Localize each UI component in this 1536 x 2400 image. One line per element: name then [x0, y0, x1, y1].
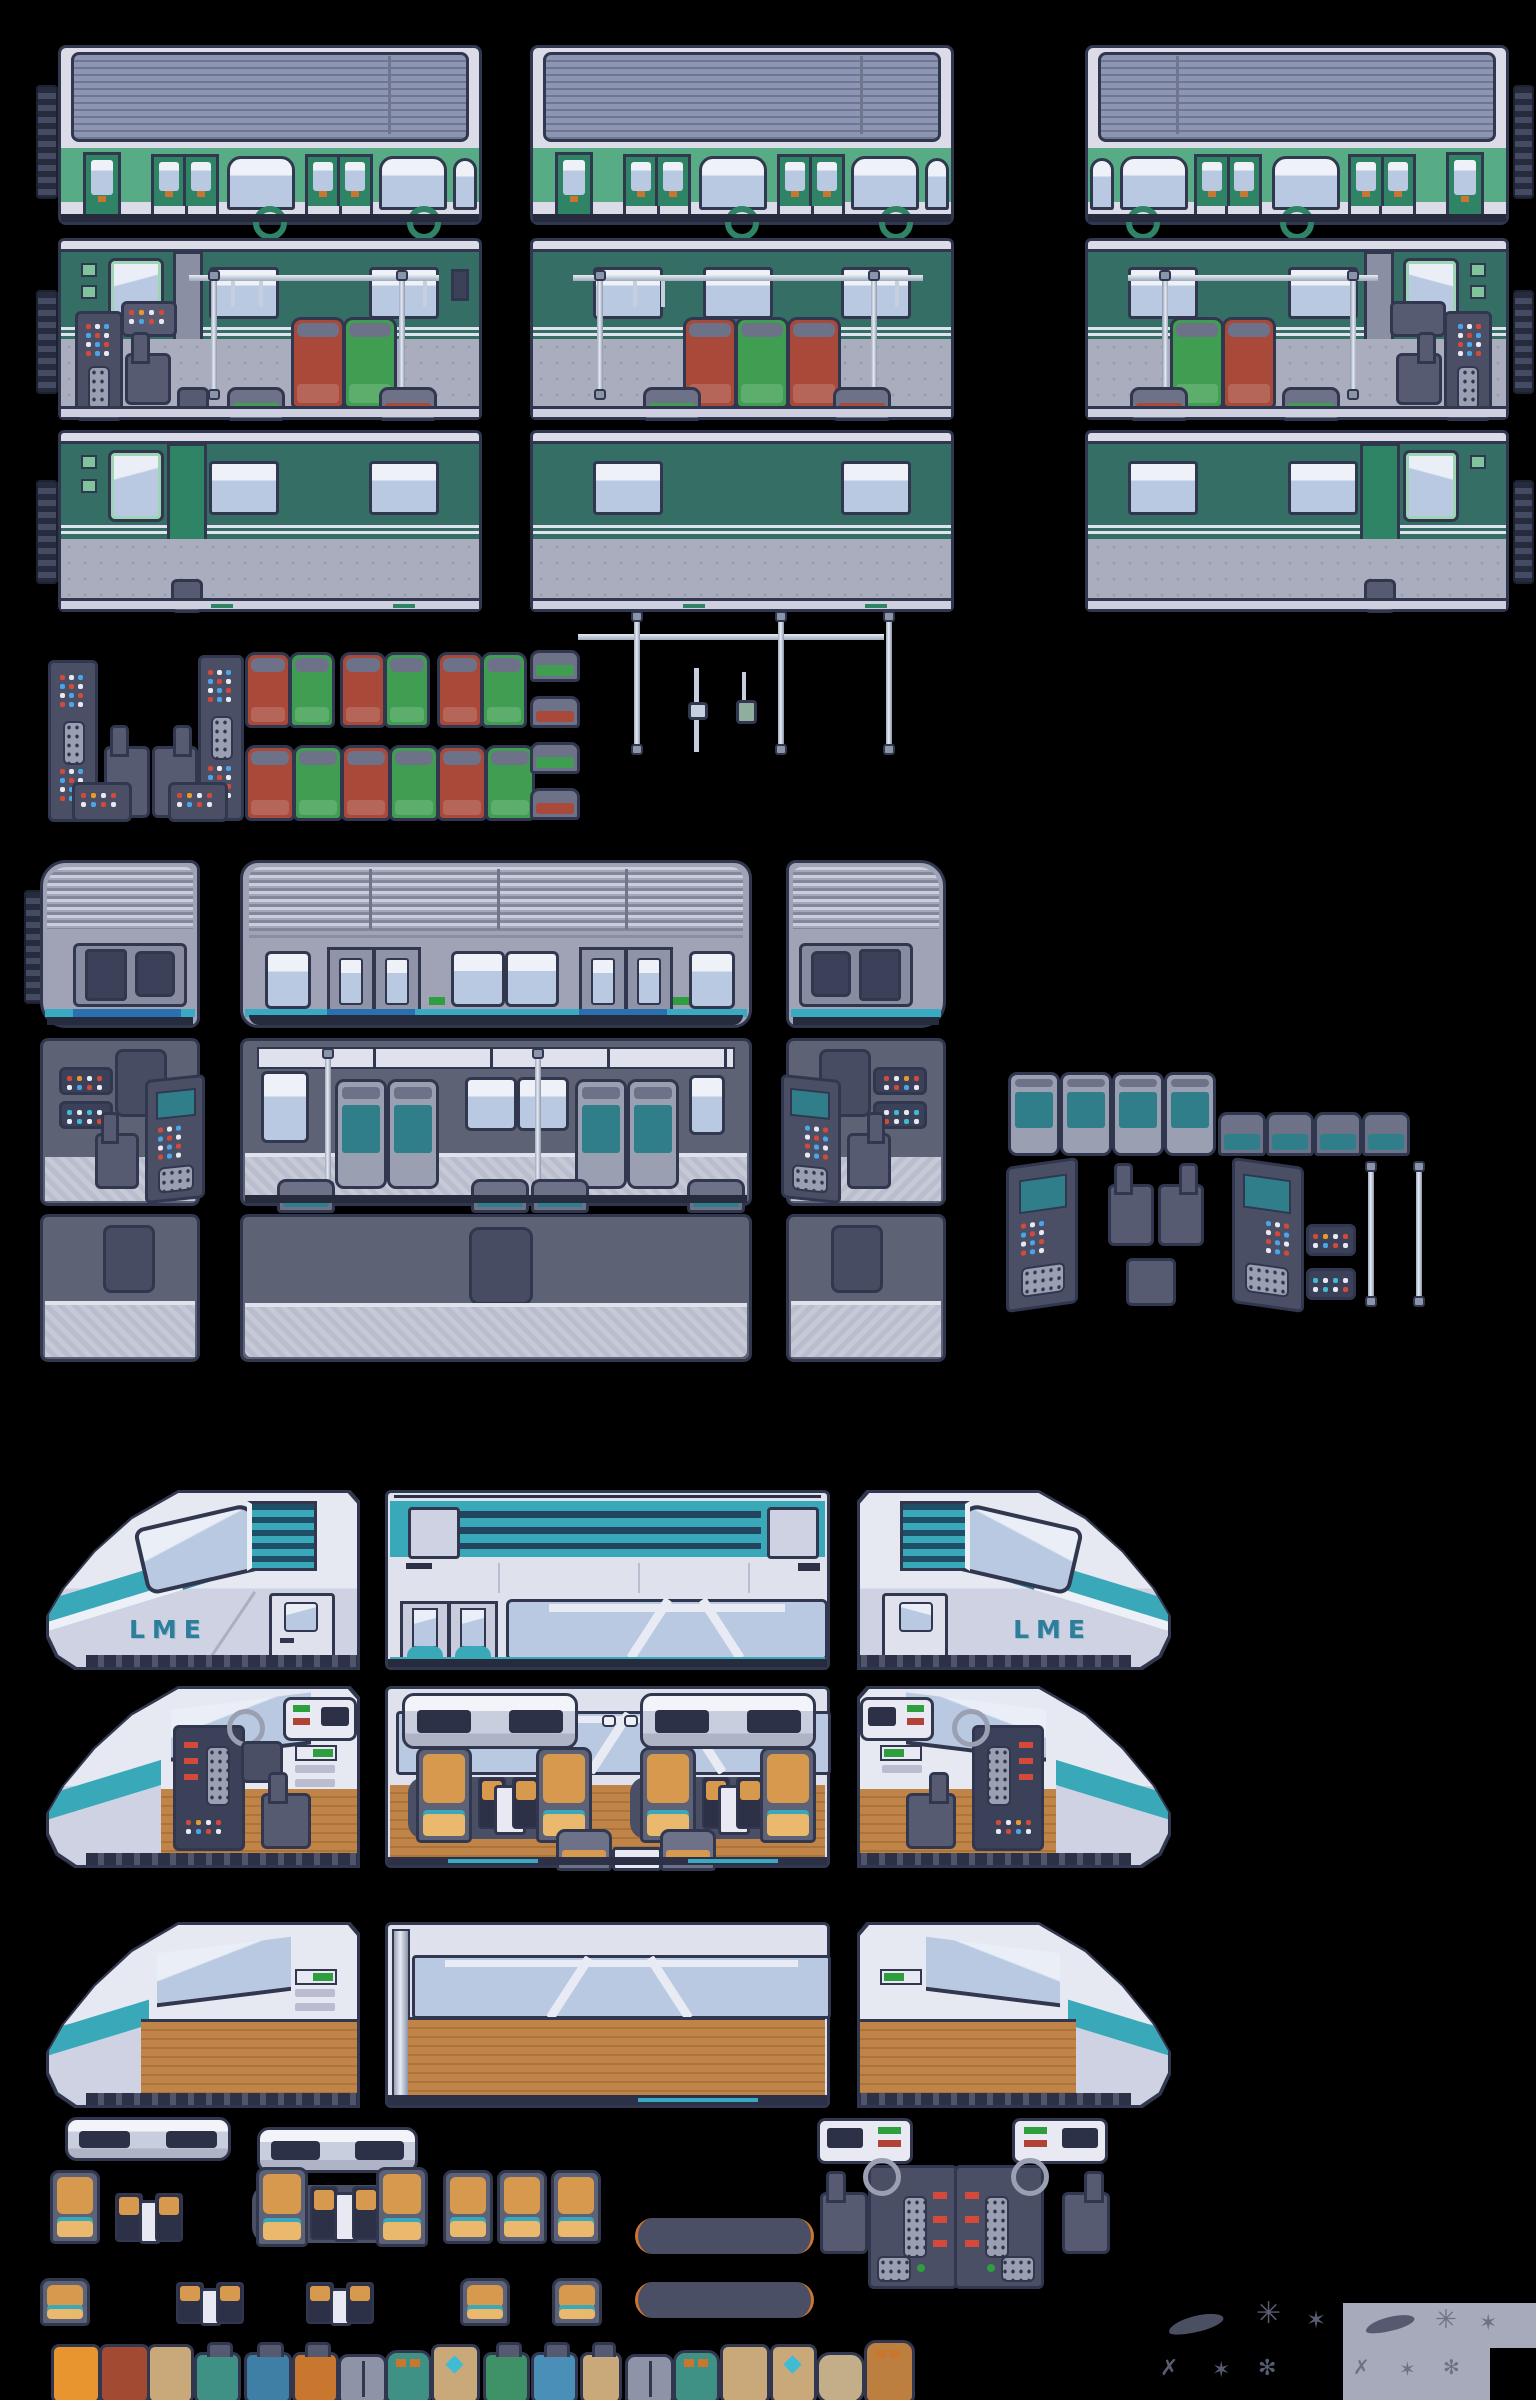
driver-chair	[820, 2192, 868, 2254]
hull-body: LME	[860, 1493, 1168, 1667]
ring-emblem	[879, 206, 913, 240]
hull-outline: LME	[46, 1490, 360, 1670]
panel-slot	[211, 716, 233, 760]
scratch-splat	[1364, 2311, 1416, 2337]
suitcase-tan	[147, 2344, 194, 2400]
door-right-leaf	[655, 154, 691, 212]
vertical-pole	[597, 275, 603, 395]
window	[593, 461, 663, 515]
ring-emblem	[725, 206, 759, 240]
car-wall	[1085, 430, 1509, 612]
panel-slot	[88, 366, 110, 410]
label-dash	[406, 1563, 432, 1569]
baseboard-cyan	[688, 1859, 778, 1863]
window-small-arched	[925, 158, 949, 210]
driver-chair	[261, 1793, 311, 1849]
skirt	[86, 2093, 357, 2105]
panel-notch	[1490, 2348, 1536, 2400]
roof-seam	[1176, 56, 1179, 134]
info-sticker	[295, 1779, 335, 1787]
green-car-exterior-2	[530, 45, 954, 225]
brand-label: LME	[1013, 1615, 1092, 1644]
bag-gray-double	[625, 2354, 674, 2400]
car-wall	[240, 1214, 752, 1362]
seat-gray-teal	[387, 1079, 439, 1189]
wall-stripes	[533, 525, 951, 537]
control-console	[72, 782, 132, 822]
end-window	[261, 1071, 309, 1143]
info-sticker	[295, 1989, 335, 1997]
ring-emblem	[1280, 206, 1314, 240]
label-dash	[798, 1563, 820, 1571]
buttons-red	[67, 1076, 72, 1081]
cab-panel-tower	[75, 311, 123, 421]
booth-stool	[155, 2193, 183, 2242]
door-window	[284, 1602, 318, 1632]
cockpit-console-right	[1232, 1157, 1304, 1313]
seat-orange	[416, 1747, 472, 1843]
window-small-arched	[1090, 158, 1114, 210]
door-window	[460, 1608, 486, 1648]
lme-head-wall-left	[46, 1922, 360, 2108]
backpack-brown	[864, 2340, 915, 2400]
end-window	[111, 453, 161, 519]
car-interior	[58, 238, 482, 420]
vertical-pole	[1350, 275, 1356, 395]
seat-gray-teal	[575, 1079, 627, 1189]
band-vents	[454, 1511, 761, 1549]
seat-red	[1222, 317, 1276, 409]
window	[209, 461, 279, 515]
window-arched	[1272, 156, 1340, 210]
buttons-red	[914, 1076, 919, 1081]
car-interior	[240, 1038, 752, 1206]
baseboard-marker	[211, 604, 233, 608]
button-grid	[208, 766, 213, 771]
car-body	[240, 860, 752, 1028]
roof	[793, 867, 939, 929]
wall-vent	[81, 455, 97, 469]
console-buttons	[186, 1820, 191, 1825]
baseboard-marker	[683, 604, 705, 608]
underframe	[249, 1015, 743, 1025]
door-right-leaf	[809, 154, 845, 212]
crack-mark: ✶	[1399, 2357, 1416, 2381]
crack-mark: ✻	[1258, 2356, 1276, 2381]
hull-outline: LME	[857, 1490, 1171, 1670]
skirt	[86, 1655, 357, 1667]
roof	[47, 867, 193, 929]
hull-body	[49, 1925, 357, 2105]
seat-green	[481, 652, 527, 728]
green-car-exterior-3	[1085, 45, 1509, 225]
window	[465, 1077, 517, 1131]
car-interior	[1085, 238, 1509, 420]
cab-interior	[786, 1038, 946, 1206]
cockpit-console	[972, 1725, 1044, 1851]
cab-door	[859, 949, 901, 1001]
wood-wall	[860, 2019, 1076, 2096]
seat-red	[245, 652, 291, 728]
car-body	[1085, 45, 1509, 225]
hand-strap	[895, 281, 899, 307]
console-keypad	[1021, 1262, 1065, 1298]
panel-seam	[748, 1563, 750, 1593]
cab-door	[85, 949, 127, 1001]
body-seam	[249, 935, 743, 938]
lme-mid-exterior	[385, 1490, 830, 1670]
car-wall	[58, 430, 482, 612]
underframe	[533, 214, 951, 222]
window-arched	[851, 156, 919, 210]
band-panel	[767, 1507, 819, 1559]
crack-mark: ✳	[1435, 2305, 1457, 2335]
window-arched	[227, 156, 295, 210]
cyan-stripe	[791, 1009, 941, 1017]
roof	[543, 52, 941, 142]
button-panel	[1306, 1224, 1356, 1256]
wall-vent	[81, 263, 97, 277]
brand-label: LME	[129, 1615, 208, 1644]
vertical-pole	[886, 616, 892, 750]
cockpit-console-right	[954, 2165, 1044, 2289]
window	[369, 461, 439, 515]
hull-outline	[46, 1922, 360, 2108]
metro-cab-interior-left	[40, 1038, 200, 1206]
vertical-pole	[1416, 1166, 1422, 1302]
crack-mark: ✶	[1306, 2306, 1326, 2334]
metro-car-exterior	[240, 860, 752, 1028]
hand-strap	[633, 281, 637, 307]
luggage-rack	[640, 1693, 816, 1749]
interior-door	[103, 1225, 155, 1293]
roller-bag-green	[483, 2352, 530, 2400]
driver-chair	[95, 1133, 139, 1189]
control-console	[168, 782, 228, 822]
console-keypad	[792, 1164, 828, 1194]
baseboard	[1088, 406, 1506, 417]
metro-car-wall	[240, 1214, 752, 1362]
galley-unit	[1012, 2118, 1108, 2164]
body-seam	[209, 1591, 256, 1659]
hull-body	[860, 1925, 1168, 2105]
roller-bag-orange	[292, 2352, 339, 2400]
metro-seat-back	[1218, 1112, 1266, 1156]
seat-red	[341, 745, 391, 821]
metro-seat-front	[1060, 1072, 1112, 1156]
hand-strap	[661, 281, 665, 307]
roller-bag-teal	[194, 2352, 241, 2400]
console-screen	[156, 1088, 196, 1120]
bag-tan-diamond	[770, 2344, 817, 2400]
hull-outline	[857, 1686, 1171, 1868]
panel-slot	[1457, 366, 1479, 410]
scratch-splat	[1167, 2309, 1225, 2338]
underframe	[388, 1659, 827, 1667]
lme-head-exterior-left: LME	[46, 1490, 360, 1670]
hand-strap	[259, 281, 263, 307]
roller-bag-blue	[531, 2352, 578, 2400]
backpack-teal	[385, 2350, 432, 2400]
door-left-leaf	[305, 154, 341, 212]
button-panel	[873, 1067, 927, 1095]
roof-seam	[625, 869, 628, 929]
roof-seam	[388, 56, 391, 134]
button-panel	[1306, 1268, 1356, 1300]
cab-wall	[40, 1214, 200, 1362]
console-screen	[1243, 1173, 1291, 1214]
door-right-leaf	[1348, 154, 1384, 212]
green-car-interior-1	[58, 238, 482, 420]
baseboard	[61, 406, 479, 417]
metro-cab-interior-right	[786, 1038, 946, 1206]
door-right-leaf	[1194, 154, 1230, 212]
green-car-wall-2	[530, 430, 954, 612]
floor	[1088, 539, 1506, 601]
metro-seat-front	[1164, 1072, 1216, 1156]
console-buttons	[81, 793, 86, 798]
side-vents	[900, 1501, 970, 1571]
hand-strap	[231, 281, 235, 307]
keypad	[1001, 2256, 1035, 2282]
green-car-interior-3	[1085, 238, 1509, 420]
cab-console	[1390, 301, 1446, 337]
window-band	[412, 1955, 831, 2019]
crack-mark: ✶	[1479, 2311, 1497, 2336]
car-wall	[530, 430, 954, 612]
vertical-pole	[778, 616, 784, 750]
vertical-pole	[325, 1053, 331, 1187]
info-sticker	[295, 1765, 335, 1773]
vertical-pole	[399, 275, 405, 395]
seat-gray-teal	[335, 1079, 387, 1189]
car-body	[530, 45, 954, 225]
band-panel	[408, 1507, 460, 1559]
wall-vent	[1470, 455, 1486, 469]
luggage-rack	[402, 1693, 578, 1749]
roof-seam	[860, 56, 863, 134]
door-left-leaf	[777, 154, 813, 212]
roller-bag-tan	[580, 2352, 622, 2400]
skirt	[388, 2095, 827, 2105]
seat-orange	[760, 1747, 816, 1843]
mirrored-hull: LME	[857, 1490, 1171, 1670]
lme-mid-interior	[385, 1686, 830, 1868]
seat-orange	[50, 2170, 100, 2244]
end-door	[1446, 152, 1484, 220]
windshield	[950, 1502, 1084, 1596]
end-window	[265, 951, 311, 1009]
hull-body: LME	[49, 1493, 357, 1667]
baseboard	[533, 598, 951, 609]
lme-mid-wall	[385, 1922, 830, 2108]
status-chip	[295, 1745, 337, 1761]
hull-outline	[857, 1922, 1171, 2108]
baseboard	[61, 598, 479, 609]
cockpit-console	[173, 1725, 245, 1851]
door-right-leaf	[183, 154, 219, 212]
underframe	[61, 214, 479, 222]
baseboard	[533, 406, 951, 417]
green-car-wall-1	[58, 430, 482, 612]
seat-green	[485, 745, 535, 821]
ring-emblem	[253, 206, 287, 240]
pole-knob	[688, 702, 708, 720]
end-door	[83, 152, 121, 220]
metro-seat-front	[1112, 1072, 1164, 1156]
baseboard	[245, 1195, 747, 1203]
window	[841, 461, 911, 515]
cab-interior	[40, 1038, 200, 1206]
driver-seat	[1396, 353, 1442, 405]
panel-seam	[498, 1563, 500, 1593]
green-car-exterior-1	[58, 45, 482, 225]
floor-mat-pill	[635, 2282, 814, 2318]
metro-cab-exterior-left	[40, 860, 200, 1028]
button-panel	[59, 1067, 113, 1095]
cab-window	[135, 951, 175, 997]
driver-chair	[906, 1793, 956, 1849]
roller-bag-blue	[244, 2352, 292, 2400]
end-window	[1406, 453, 1456, 519]
car-body	[58, 45, 482, 225]
driver-chair	[1062, 2192, 1110, 2254]
seat-green	[735, 317, 789, 409]
side-vents	[247, 1501, 317, 1571]
lever-slot	[206, 1746, 230, 1806]
lever-slot	[987, 1746, 1011, 1806]
metro-cab-wall-right	[786, 1214, 946, 1362]
wall-vent	[81, 285, 97, 299]
red-switch	[965, 2192, 979, 2199]
button-grid	[86, 324, 91, 329]
seat-orange-partial	[552, 2278, 602, 2326]
cab-panel-tower	[1444, 311, 1492, 421]
cab-body	[786, 860, 946, 1028]
car-interior	[385, 1686, 830, 1868]
crack-mark: ✗	[1160, 2356, 1178, 2381]
window-arched	[1120, 156, 1188, 210]
wood-wall	[141, 2019, 357, 2096]
wall-stripes	[1088, 525, 1506, 537]
galley-unit	[860, 1697, 934, 1741]
ceiling-bolt	[602, 1715, 616, 1727]
coupler	[1513, 480, 1534, 584]
window	[451, 951, 505, 1007]
duffel-tan	[816, 2352, 865, 2400]
interior-door	[469, 1227, 533, 1305]
coupler	[1513, 290, 1534, 394]
seat-orange	[443, 2170, 493, 2244]
steering-wheel	[863, 2158, 901, 2196]
console-screen	[790, 1088, 830, 1120]
driver-seat	[125, 353, 171, 405]
skirt	[860, 1655, 1131, 1667]
cab-wall	[786, 1214, 946, 1362]
console-keypad	[1245, 1262, 1289, 1298]
crack-mark: ✶	[1212, 2358, 1230, 2383]
vertical-pole	[1162, 275, 1168, 395]
suitcase-tan-large	[720, 2344, 770, 2400]
buttons-teal	[914, 1110, 919, 1115]
crack-mark: ✳	[1256, 2296, 1281, 2331]
window	[1288, 461, 1358, 515]
booth-stool	[346, 2282, 374, 2324]
baseboard-marker	[393, 604, 415, 608]
metro-seat-back	[1266, 1112, 1314, 1156]
buttons	[1313, 1234, 1318, 1239]
backpack-teal	[673, 2350, 720, 2400]
metro-cab-wall-left	[40, 1214, 200, 1362]
console-buttons	[1284, 1223, 1289, 1229]
seat-orange	[551, 2170, 601, 2244]
vertical-pole	[211, 275, 217, 395]
roof	[249, 867, 743, 931]
seat-orange-partial	[460, 2278, 510, 2326]
seat-orange	[256, 2167, 308, 2247]
ceiling-rail	[578, 634, 884, 640]
coupler	[36, 85, 58, 199]
door-left-leaf	[1380, 154, 1416, 212]
floor	[533, 539, 951, 601]
seat-red	[245, 745, 295, 821]
buttons	[1313, 1278, 1318, 1283]
cockpit-console-left	[1006, 1157, 1078, 1313]
roof-line	[394, 1495, 821, 1498]
wood-wall	[408, 2017, 825, 2095]
seat-green	[289, 652, 335, 728]
seat-red	[291, 317, 345, 409]
seat-orange	[376, 2167, 428, 2247]
baseboard-marker	[865, 604, 887, 608]
cockpit-console	[145, 1074, 205, 1204]
baseboard	[1088, 598, 1506, 609]
red-switch	[184, 1742, 198, 1748]
seat-green	[293, 745, 343, 821]
door-left-leaf	[1226, 154, 1262, 212]
floor	[61, 539, 479, 601]
green-light	[917, 2264, 925, 2272]
console-buttons	[158, 1127, 163, 1133]
button-grid	[60, 769, 65, 774]
button-grid	[1476, 324, 1481, 329]
blue-stripe-segment	[73, 1009, 181, 1017]
cab-body	[40, 860, 200, 1028]
floor	[245, 1307, 747, 1357]
seat-red	[437, 652, 483, 728]
console-buttons	[1021, 1223, 1026, 1229]
car-interior	[530, 238, 954, 420]
keypad	[877, 2256, 911, 2282]
baseboard-cyan	[448, 1859, 538, 1863]
lme-head-interior-right	[857, 1686, 1171, 1868]
lever-slot	[903, 2196, 927, 2258]
seat-back-red	[530, 696, 580, 728]
buttons-teal	[67, 1110, 72, 1115]
green-car-wall-3	[1085, 430, 1509, 612]
window-arched	[699, 156, 767, 210]
underframe	[1088, 214, 1506, 222]
steering-wheel	[1011, 2158, 1049, 2196]
skirt	[860, 2093, 1131, 2105]
driver-chair	[847, 1133, 891, 1189]
luggage-rack	[65, 2117, 231, 2161]
metro-seat-back	[1362, 1112, 1410, 1156]
galley-unit	[817, 2118, 913, 2164]
underframe	[793, 1017, 939, 1025]
suitcase-red	[99, 2344, 150, 2400]
car-body	[385, 1490, 830, 1670]
